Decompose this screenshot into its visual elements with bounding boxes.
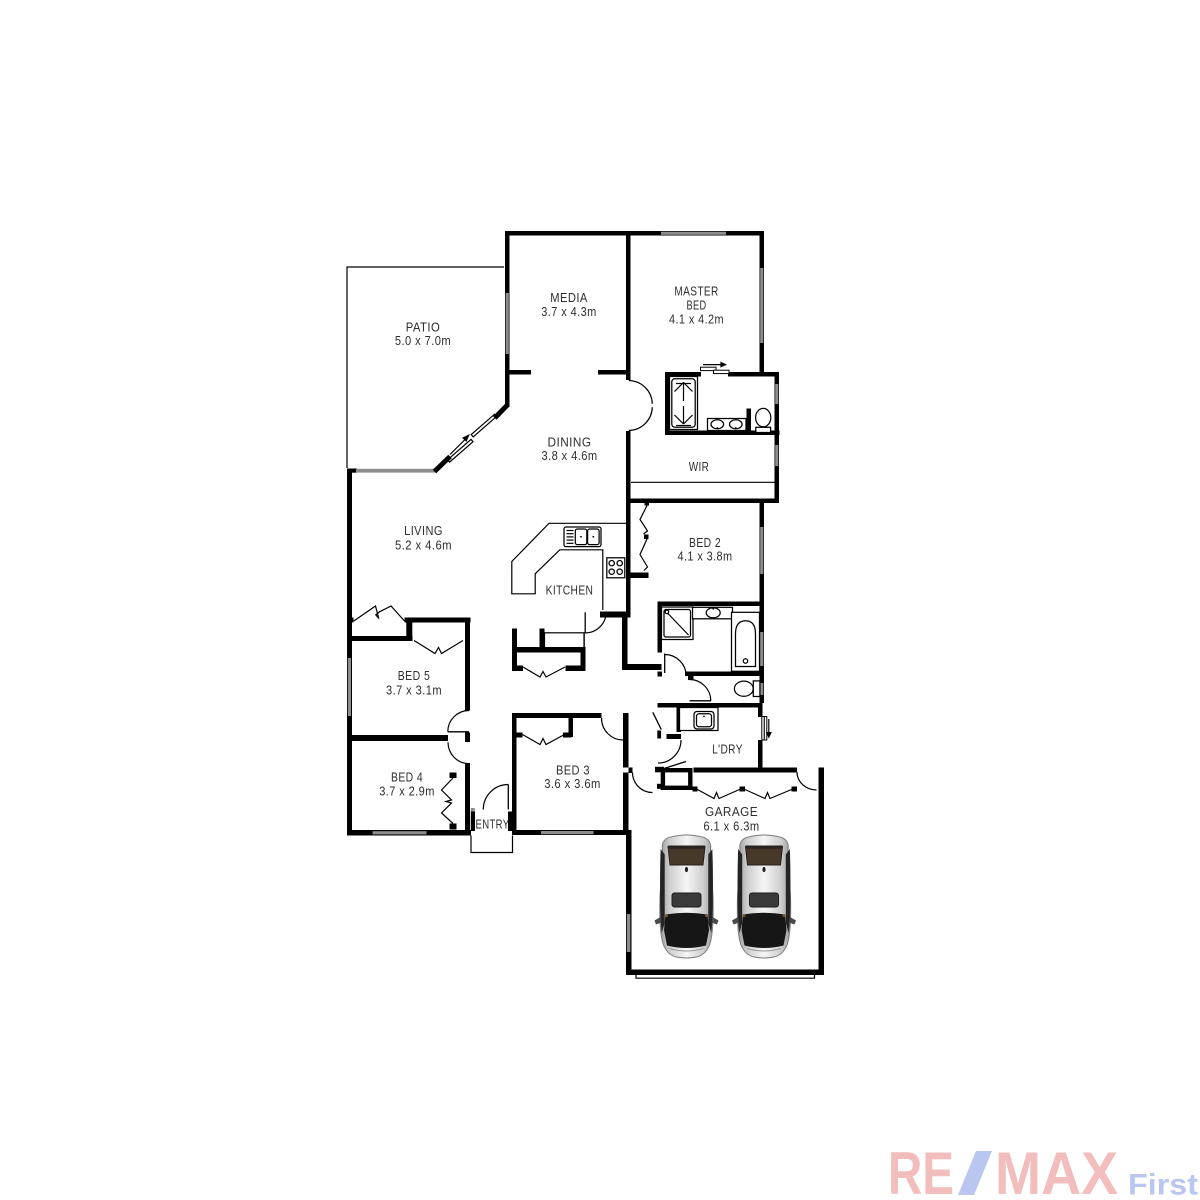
svg-text:First: First [1128, 1169, 1198, 1200]
svg-text:MAX: MAX [995, 1140, 1118, 1200]
svg-text:WIR: WIR [689, 459, 710, 474]
svg-text:BED: BED [687, 298, 707, 313]
svg-text:LIVING: LIVING [404, 523, 443, 538]
svg-text:6.1 x 6.3m: 6.1 x 6.3m [703, 819, 759, 834]
svg-text:3.8 x 4.6m: 3.8 x 4.6m [542, 448, 598, 463]
svg-text:5.2 x 4.6m: 5.2 x 4.6m [395, 538, 452, 553]
svg-text:L'DRY: L'DRY [712, 742, 743, 757]
svg-text:GARAGE: GARAGE [705, 804, 758, 819]
svg-text:3.7 x 3.1m: 3.7 x 3.1m [386, 683, 442, 698]
svg-text:ENTRY: ENTRY [476, 817, 510, 832]
svg-text:3.7 x 4.3m: 3.7 x 4.3m [541, 304, 597, 319]
svg-text:BED 5: BED 5 [398, 668, 431, 683]
svg-text:MASTER: MASTER [674, 284, 718, 299]
svg-text:KITCHEN: KITCHEN [546, 583, 594, 598]
svg-text:BED 4: BED 4 [391, 770, 423, 785]
svg-text:3.6 x 3.6m: 3.6 x 3.6m [544, 776, 601, 791]
svg-text:4.1 x 4.2m: 4.1 x 4.2m [669, 312, 724, 327]
svg-text:4.1 x 3.8m: 4.1 x 3.8m [678, 549, 733, 564]
svg-text:MEDIA: MEDIA [550, 290, 588, 305]
svg-text:3.7 x 2.9m: 3.7 x 2.9m [379, 784, 435, 799]
svg-text:5.0 x 7.0m: 5.0 x 7.0m [395, 333, 451, 348]
svg-text:RE: RE [888, 1140, 954, 1200]
